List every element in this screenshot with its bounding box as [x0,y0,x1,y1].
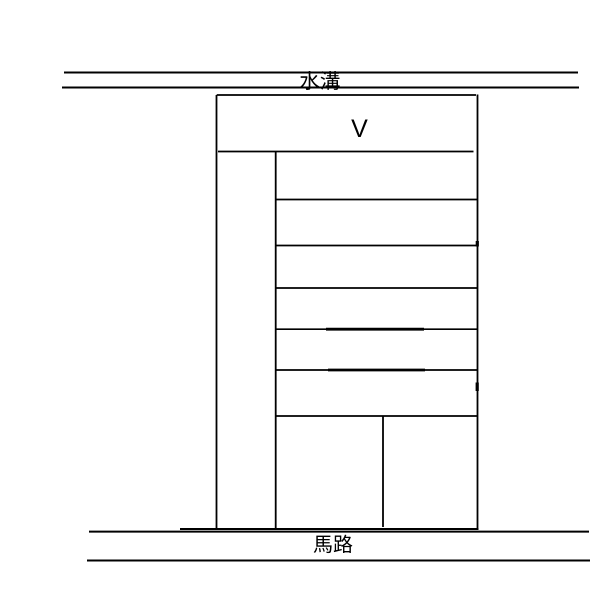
svg-text:V: V [351,115,368,143]
